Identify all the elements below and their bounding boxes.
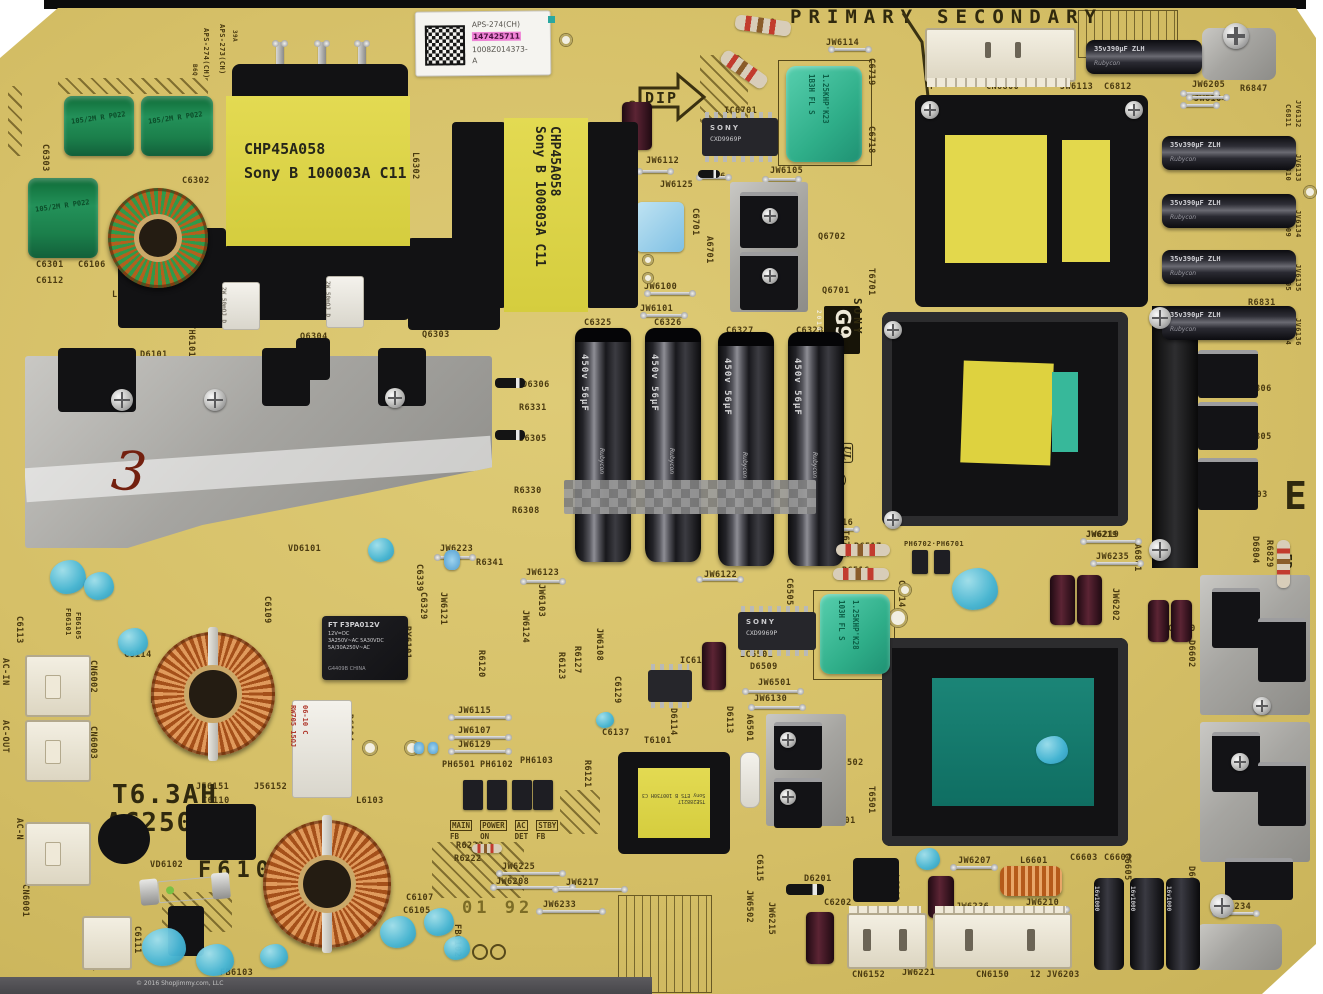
cap-brand: Rubycon xyxy=(741,452,748,478)
transformer-secondary-top xyxy=(915,95,1148,307)
transformer-secondary-mid xyxy=(882,312,1128,526)
ic-brand: SONY xyxy=(746,618,776,626)
rectifier-diode xyxy=(1258,618,1306,682)
optocoupler xyxy=(487,780,507,810)
black-component xyxy=(186,804,256,860)
sticker-code: 1008Z014373- xyxy=(472,45,528,55)
resistor-marking: 2W 50mΩJ D xyxy=(324,281,331,317)
sticker-serial: 147425711 xyxy=(472,32,521,42)
cap-marking: 450v 56µF xyxy=(649,354,659,412)
jumper-wire xyxy=(452,750,508,753)
bulk-capacitor-c6325: 450v 56µFRubycon xyxy=(575,328,631,562)
fuse-cap xyxy=(211,872,231,899)
teal-cap-ic6501-side: 103H FL S 1.25KHP'K28 xyxy=(820,594,890,674)
adhesive-glue-blob xyxy=(444,936,470,960)
bulk-capacitor-c6328: 450v 56µFRubycon xyxy=(788,332,844,566)
board-hole xyxy=(643,273,653,283)
relay-part: FT F3PA012V xyxy=(328,621,380,629)
jumper-wire xyxy=(452,716,508,719)
transformer-window xyxy=(1062,140,1110,262)
small-capacitor: 16v1000 xyxy=(1094,878,1124,970)
board-hole xyxy=(363,741,377,755)
secondary-heatsink xyxy=(1152,306,1198,568)
transformer-part-number: CHP45A058 xyxy=(244,140,325,158)
output-capacitor: 35v390µF ZLHRubycon xyxy=(1162,306,1296,340)
jumper-wire xyxy=(640,170,670,173)
board-hole xyxy=(560,34,572,46)
cap-marking: 35v390µF ZLH xyxy=(1170,141,1221,149)
small-electrolytic-capacitor xyxy=(1171,600,1192,642)
resistor-marking: 06-10 C xyxy=(301,705,309,735)
film-cap-c6303: 105/2M R P022 xyxy=(64,96,134,156)
resistor-marking: 2W 50mΩJ D xyxy=(220,287,227,323)
transformer-teal-tape xyxy=(932,678,1094,806)
small-capacitor: 16v1000 xyxy=(1166,878,1200,970)
bulk-capacitor-c6326: 450v 56µFRubycon xyxy=(645,328,701,562)
jumper-wire xyxy=(556,888,624,891)
rectifier-diode xyxy=(1258,762,1306,826)
screw-icon xyxy=(1223,23,1249,49)
optocoupler xyxy=(934,550,950,574)
cement-resistor xyxy=(740,752,760,808)
jumper-wire xyxy=(1190,96,1226,99)
adhesive-glue-blob xyxy=(1036,736,1068,764)
power-resistor: 2W 50mΩJ D xyxy=(326,276,364,328)
rectifier-diode xyxy=(1225,858,1293,900)
axial-resistor xyxy=(836,544,890,556)
screw-icon xyxy=(762,208,778,224)
transformer-lot: Sony B 100003A C11 xyxy=(244,164,407,182)
cap-marking: 450v 56µF xyxy=(792,358,802,416)
ic-part: CXD9969P xyxy=(710,135,741,143)
cap-marking: 35v390µF ZLH xyxy=(1094,45,1145,53)
rectifier-diode xyxy=(1198,458,1258,510)
cap-marking: 103H FL S xyxy=(837,600,846,641)
cap-marking: 35v390µF ZLH xyxy=(1170,199,1221,207)
ferrite-bead-symbol xyxy=(491,945,505,959)
transformer-window xyxy=(945,135,1047,263)
small-electrolytic-capacitor xyxy=(1077,575,1102,625)
blue-disc-capacitor xyxy=(428,742,438,754)
jumper-wire xyxy=(500,872,562,875)
transformer-lot: Sony ETS B 100730H C3 xyxy=(642,792,705,798)
cap-brand: Rubycon xyxy=(1094,60,1120,67)
jumper-wire xyxy=(1184,104,1216,107)
datamatrix-barcode-icon xyxy=(425,25,465,65)
sticker-model: APS-274(CH) xyxy=(472,20,520,30)
transistor-q6501 xyxy=(774,778,822,828)
transformer-label-text: CHP45A058 Sony B 100803A C11 xyxy=(532,126,562,267)
resistor-marking: RW705 15ΩJ xyxy=(289,705,297,747)
jumper-wire xyxy=(954,866,994,869)
teal-cap-c6718: 1B3H FL S 1.25KHP'K23 xyxy=(786,66,862,162)
ground-tab-et6601 xyxy=(1196,924,1282,970)
small-electrolytic-capacitor xyxy=(1148,600,1169,642)
jumper-wire xyxy=(644,314,684,317)
bulk-capacitor-c6327: 450v 56µFRubycon xyxy=(718,332,774,566)
jumper-wire xyxy=(832,48,868,51)
cap-brand: Rubycon xyxy=(1170,156,1196,163)
screw-icon xyxy=(111,389,133,411)
cap-marking: 16v1000 xyxy=(1165,886,1172,911)
relay-spec: 12V=DC xyxy=(328,631,349,637)
cap-marking: 1B3H FL S xyxy=(807,74,816,115)
rectifier-diode xyxy=(1198,402,1258,450)
adhesive-glue-blob xyxy=(84,572,114,600)
small-electrolytic-capacitor xyxy=(806,912,834,964)
cap-marking: 35v390µF ZLH xyxy=(1170,255,1221,263)
toroid-l6301 xyxy=(108,188,208,288)
cap-brand: Rubycon xyxy=(1170,270,1196,277)
adhesive-glue-blob xyxy=(368,538,394,562)
transformer-part-number: TSE288217 xyxy=(642,798,705,804)
transistor-q6502 xyxy=(774,722,822,770)
cap-marking: 105/2M R P022 xyxy=(71,110,126,126)
diode xyxy=(495,430,525,440)
adhesive-glue-blob xyxy=(952,568,998,610)
screw-icon xyxy=(780,789,796,805)
teal-paint-dot xyxy=(548,16,555,23)
ferrite-bead-symbol xyxy=(473,945,487,959)
axial-resistor xyxy=(833,568,889,580)
sticker-code-suffix: A xyxy=(472,56,477,65)
cap-brand: Rubycon xyxy=(668,448,675,474)
board-hole xyxy=(889,609,907,627)
screw-icon xyxy=(204,389,226,411)
fuse-cap xyxy=(139,878,159,905)
ic6102-chip xyxy=(648,670,692,702)
screw-icon xyxy=(1231,753,1249,771)
transformer-lot: Sony B 100803A C11 xyxy=(532,126,547,267)
cap-brand: Rubycon xyxy=(811,452,818,478)
cap-marking: 105/2M R P022 xyxy=(148,110,203,126)
ic6701-chip: SONY CXD9969P xyxy=(702,118,778,156)
jumper-wire xyxy=(700,578,740,581)
screw-icon xyxy=(1253,697,1271,715)
output-capacitor: 35v390µF ZLHRubycon xyxy=(1162,136,1296,170)
diode xyxy=(786,884,824,895)
black-component xyxy=(853,858,899,902)
optocoupler xyxy=(912,550,928,574)
handwritten-mark: 3 xyxy=(109,438,150,504)
transformer-tape-label: CHP45A058 Sony B 100803A C11 xyxy=(504,118,588,312)
optocoupler xyxy=(463,780,483,810)
small-electrolytic-capacitor xyxy=(1050,575,1075,625)
part-number-sticker: APS-274(CH) 147425711 1008Z014373- A xyxy=(415,10,552,76)
diode xyxy=(698,170,720,178)
small-electrolytic-capacitor xyxy=(702,642,726,690)
cap-brand: Rubycon xyxy=(1170,214,1196,221)
optocoupler xyxy=(533,780,553,810)
jumper-wire xyxy=(524,580,562,583)
connector-cn6001-ac xyxy=(25,822,91,886)
photo-background-edge xyxy=(0,977,652,994)
cap-marking: 450v 56µF xyxy=(579,354,589,412)
jumper-wire xyxy=(452,736,508,739)
diode xyxy=(495,378,525,388)
coil-l6601 xyxy=(1000,866,1062,896)
screw-icon xyxy=(762,268,778,284)
adhesive-glue-blob xyxy=(380,916,416,948)
cap-marking: 16v1000 xyxy=(1129,886,1136,911)
screw-icon xyxy=(1210,894,1234,918)
board-hole xyxy=(1304,186,1316,198)
jumper-wire xyxy=(746,690,800,693)
cap-marking: 105/2M R P022 xyxy=(35,198,90,214)
screw-icon xyxy=(921,101,939,119)
jumper-wire xyxy=(766,178,798,181)
watermark: © 2016 ShopJimmy.com, LLC xyxy=(136,980,223,987)
screw-icon xyxy=(884,321,902,339)
cap-marking: 16v1000 xyxy=(1093,886,1100,911)
screw-icon xyxy=(884,511,902,529)
transformer-tape-label: TSE288217 Sony ETS B 100730H C3 xyxy=(638,768,710,838)
toroid-l6103 xyxy=(263,820,391,948)
screw-icon xyxy=(1125,101,1143,119)
screw-icon xyxy=(780,732,796,748)
transformer-tape-label: CHP45A058 Sony B 100003A C11 xyxy=(226,96,410,246)
screw-icon xyxy=(1149,539,1171,561)
output-capacitor: 35v390µF ZLHRubycon xyxy=(1086,40,1202,74)
blue-capacitor xyxy=(636,202,684,252)
adhesive-glue-blob xyxy=(118,628,148,656)
cap-marking: 450v 56µF xyxy=(722,358,732,416)
transformer-part-number: CHP45A058 xyxy=(547,126,562,267)
axial-resistor xyxy=(472,844,502,853)
cap-marking: 1.25KHP'K28 xyxy=(851,600,860,650)
power-resistor: 2W 50mΩJ D xyxy=(222,282,260,330)
cap-brand: Rubycon xyxy=(1170,326,1196,333)
film-cap-c6301: 105/2M R P022 xyxy=(28,178,98,258)
relay-origin: G4409B CHINA xyxy=(328,666,366,672)
ic-part: CXD9969P xyxy=(746,629,777,637)
adhesive-glue-blob xyxy=(50,560,86,594)
toroid-l6101 xyxy=(151,632,275,756)
connector-cn6152 xyxy=(847,913,927,969)
blue-disc-capacitor xyxy=(414,742,424,754)
connector-cn6002-ac-in xyxy=(25,655,91,717)
cap-marking: 1.25KHP'K23 xyxy=(821,74,830,124)
relay-spec: 5A/30A250V~AC xyxy=(328,645,370,651)
ic6501-chip: SONY CXD9969P xyxy=(738,612,816,650)
ceramic-resistor-r6104: RW705 15ΩJ 06-10 C xyxy=(292,700,352,798)
transformer-window xyxy=(960,360,1054,465)
axial-resistor xyxy=(1277,540,1290,588)
connector-cn6003-ac-out xyxy=(25,720,91,782)
cap-marking: 35v390µF ZLH xyxy=(1170,311,1221,319)
photo-sony-aps273-power-board: R6729JW6114C6719C6718L6303ET6801↑CN6800F… xyxy=(0,0,1323,994)
small-capacitor: 16v1000 xyxy=(1130,878,1164,970)
output-capacitor: 35v390µF ZLHRubycon xyxy=(1162,250,1296,284)
adhesive-glue-blob xyxy=(424,908,454,936)
transformer-label-text: TSE288217 Sony ETS B 100730H C3 xyxy=(642,792,705,804)
screw-icon xyxy=(1149,307,1171,329)
adhesive-glue-blob xyxy=(260,944,288,968)
connector-cn6150 xyxy=(933,913,1072,969)
connector-small xyxy=(82,916,132,970)
censored-region xyxy=(564,480,816,514)
transformer-secondary-bottom xyxy=(882,638,1128,846)
jumper-wire xyxy=(648,292,692,295)
optocoupler xyxy=(512,780,532,810)
adhesive-glue-blob xyxy=(596,712,614,728)
disc-capacitor xyxy=(98,814,150,864)
board-hole xyxy=(899,584,911,596)
transformer-clamp xyxy=(586,122,638,308)
board-hole xyxy=(643,255,653,265)
adhesive-glue-blob xyxy=(142,928,186,966)
adhesive-glue-blob xyxy=(196,944,234,976)
power-transistor xyxy=(262,348,310,406)
film-cap-c6302: 105/2M R P022 xyxy=(141,96,213,156)
rectifier-diode xyxy=(1212,588,1260,648)
rectifier-diode xyxy=(1198,350,1258,398)
screw-icon xyxy=(385,388,405,408)
jumper-wire xyxy=(540,910,602,913)
transformer-clamp xyxy=(452,122,506,308)
cap-brand: Rubycon xyxy=(598,448,605,474)
blue-disc-capacitor xyxy=(444,550,460,570)
jumper-wire xyxy=(1084,540,1138,543)
output-capacitor: 35v390µF ZLHRubycon xyxy=(1162,194,1296,228)
connector-cn6800 xyxy=(925,28,1076,82)
ic-brand: SONY xyxy=(710,124,740,132)
jumper-wire xyxy=(1094,562,1140,565)
jumper-wire xyxy=(752,706,802,709)
adhesive-glue-blob xyxy=(916,848,940,870)
relay-spec: 3A250V~AC 5A30VDC xyxy=(328,638,384,644)
connector-pins xyxy=(927,78,1070,87)
transformer-teal-tape xyxy=(1052,372,1078,452)
relay-ry6101: FT F3PA012V 12V=DC 3A250V~AC 5A30VDC 5A/… xyxy=(322,616,408,680)
